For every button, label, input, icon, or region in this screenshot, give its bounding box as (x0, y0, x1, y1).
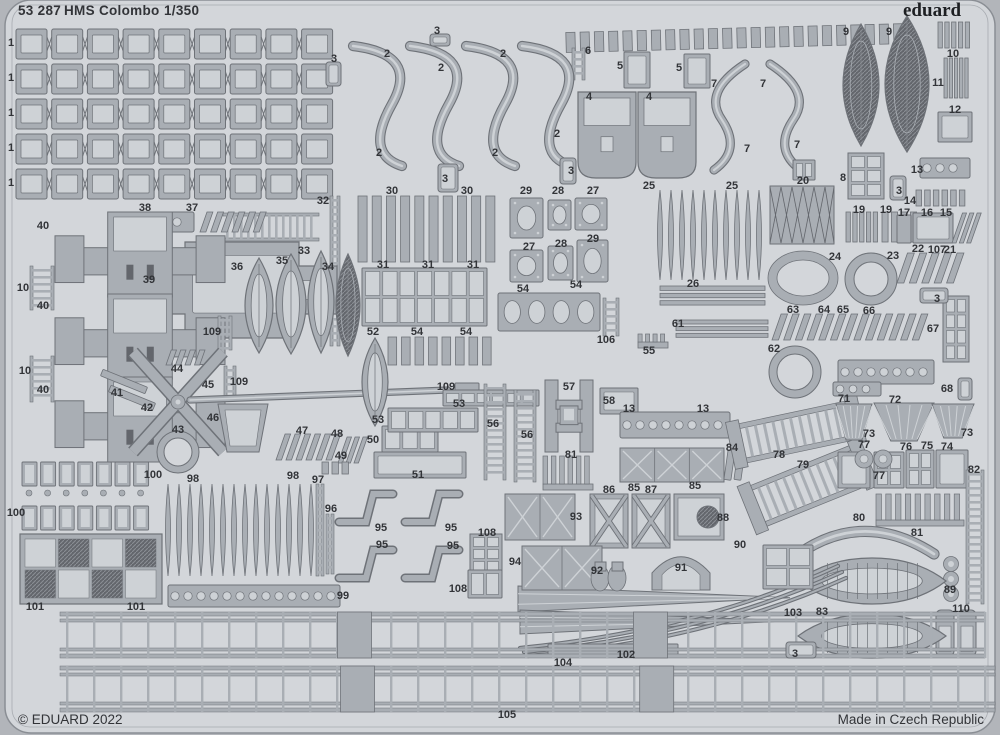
part-number-label: 2 (384, 48, 390, 60)
part-number-label: 3 (434, 25, 440, 37)
part-number-label: 61 (672, 318, 684, 330)
part-number-label: 40 (37, 220, 49, 232)
part-number-label: 95 (445, 522, 457, 534)
part-number-label: 12 (949, 104, 961, 116)
part-number-label: 109 (203, 326, 221, 338)
part-number-label: 104 (554, 657, 573, 669)
part-number-label: 3 (792, 648, 798, 660)
part-number-label: 87 (645, 484, 657, 496)
part-number-label: 77 (873, 470, 885, 482)
part-number-label: 98 (187, 473, 199, 485)
part-number-label: 62 (768, 343, 780, 355)
part-number-label: 40 (37, 384, 49, 396)
part-number-label: 90 (734, 539, 746, 551)
part-number-label: 108 (478, 527, 496, 539)
part-number-label: 27 (523, 241, 535, 253)
part-number-label: 64 (818, 304, 831, 316)
part-number-label: 42 (141, 402, 153, 414)
part-number-label: 109 (230, 376, 248, 388)
part-number-label: 32 (317, 195, 329, 207)
part-number-label: 88 (717, 512, 729, 524)
part-number-label: 52 (367, 326, 379, 338)
part-number-label: 28 (555, 238, 567, 250)
part-number-label: 66 (863, 305, 875, 317)
part-number-label: 67 (927, 323, 939, 335)
part-number-label: 38 (139, 202, 151, 214)
catalog-number: 53 287 (18, 3, 61, 18)
part-number-label: 53 (372, 414, 384, 426)
brand-logo: eduard (903, 0, 961, 22)
part-number-label: 13 (697, 403, 709, 415)
part-number-label: 25 (643, 180, 655, 192)
part-number-label: 27 (587, 185, 599, 197)
part-number-label: 65 (837, 304, 849, 316)
part-number-label: 1 (8, 142, 14, 154)
part-number-label: 82 (968, 464, 980, 476)
part-number-label: 19 (853, 204, 865, 216)
part-number-label: 13 (623, 403, 635, 415)
part-number-label: 9 (886, 26, 892, 38)
part-number-label: 79 (797, 459, 809, 471)
part-number-label: 73 (961, 427, 973, 439)
part-number-label: 2 (438, 62, 444, 74)
part-number-label: 91 (675, 562, 687, 574)
part-number-label: 51 (412, 469, 424, 481)
part-number-label: 77 (858, 439, 870, 451)
sheet-title: HMS Colombo (64, 3, 160, 18)
part-number-label: 55 (643, 345, 655, 357)
part-number-label: 10 (19, 365, 31, 377)
part-number-label: 86 (603, 484, 615, 496)
part-number-label: 44 (171, 363, 184, 375)
part-number-label: 99 (337, 590, 349, 602)
part-number-label: 75 (921, 440, 933, 452)
part-number-label: 22 (912, 243, 924, 255)
part-number-label: 97 (312, 474, 324, 486)
part-number-label: 23 (887, 250, 899, 262)
part-number-label: 94 (509, 556, 522, 568)
part-number-label: 56 (487, 418, 499, 430)
part-number-label: 40 (37, 300, 49, 312)
part-number-label: 85 (689, 480, 701, 492)
part-number-label: 3 (934, 293, 940, 305)
part-number-label: 92 (591, 565, 603, 577)
part-number-label: 83 (816, 606, 828, 618)
part-number-label: 28 (552, 185, 564, 197)
part-number-label: 31 (467, 259, 479, 271)
part-number-label: 2 (554, 128, 560, 140)
part-number-label: 31 (422, 259, 434, 271)
part-number-label: 34 (322, 261, 335, 273)
part-number-label: 1 (8, 177, 14, 189)
part-number-label: 110 (952, 603, 970, 615)
made-in-text: Made in Czech Republic (838, 712, 984, 727)
part-number-label: 11 (932, 77, 944, 89)
part-number-label: 6 (585, 45, 591, 57)
part-number-label: 43 (172, 424, 184, 436)
part-number-label: 101 (26, 601, 44, 613)
part-number-label: 9 (843, 26, 849, 38)
part-number-label: 4 (586, 91, 593, 103)
part-number-label: 54 (460, 326, 473, 338)
part-number-label: 3 (442, 173, 448, 185)
part-number-label: 2 (492, 147, 498, 159)
part-number-label: 54 (411, 326, 424, 338)
part-number-label: 24 (829, 251, 842, 263)
part-number-label: 46 (207, 412, 219, 424)
model-scale: 1/350 (164, 3, 199, 18)
part-number-label: 7 (760, 78, 766, 90)
part-number-label: 5 (676, 62, 682, 74)
part-number-label: 39 (143, 274, 155, 286)
part-number-label: 35 (276, 255, 288, 267)
part-number-label: 8 (840, 172, 846, 184)
part-number-label: 1 (8, 37, 14, 49)
part-number-label: 54 (517, 283, 530, 295)
part-number-label: 71 (838, 393, 850, 405)
part-number-label: 31 (377, 259, 389, 271)
part-number-label: 15 (940, 207, 952, 219)
part-number-label: 14 (904, 195, 917, 207)
part-number-label: 95 (375, 522, 387, 534)
part-number-label: 41 (111, 387, 123, 399)
part-number-label: 45 (202, 379, 214, 391)
part-number-label: 98 (287, 470, 299, 482)
part-number-label: 26 (687, 278, 699, 290)
part-number-label: 4 (646, 91, 653, 103)
part-number-label: 72 (889, 394, 901, 406)
part-number-label: 81 (911, 527, 923, 539)
part-number-label: 17 (898, 207, 910, 219)
part-number-label: 93 (570, 511, 582, 523)
fret-sheet-svg: 1111122222233333334455677778991010101112… (0, 0, 1000, 735)
part-number-label: 85 (628, 482, 640, 494)
part-number-label: 106 (597, 334, 615, 346)
part-number-label: 58 (603, 395, 615, 407)
part-number-label: 25 (726, 180, 738, 192)
photoetch-sheet-photo: 1111122222233333334455677778991010101112… (0, 0, 1000, 735)
part-number-label: 2 (500, 48, 506, 60)
part-number-label: 107 (928, 244, 946, 256)
part-number-label: 48 (331, 428, 343, 440)
part-number-label: 95 (376, 539, 388, 551)
part-number-label: 63 (787, 304, 799, 316)
part-number-label: 102 (617, 649, 635, 661)
part-number-label: 36 (231, 261, 243, 273)
part-number-label: 76 (900, 441, 912, 453)
part-number-label: 30 (461, 185, 473, 197)
part-number-label: 80 (853, 512, 865, 524)
part-number-label: 95 (447, 540, 459, 552)
part-number-label: 108 (449, 583, 467, 595)
part-number-label: 84 (726, 442, 739, 454)
part-number-label: 5 (617, 60, 623, 72)
part-number-label: 2 (376, 147, 382, 159)
part-number-label: 33 (298, 245, 310, 257)
part-number-label: 30 (386, 185, 398, 197)
part-number-label: 19 (880, 204, 892, 216)
copyright-text: © EDUARD 2022 (18, 712, 123, 727)
part-number-label: 68 (941, 383, 953, 395)
part-number-label: 10 (17, 282, 29, 294)
part-number-label: 78 (773, 449, 785, 461)
part-number-label: 37 (186, 202, 198, 214)
part-number-label: 96 (325, 503, 337, 515)
part-number-label: 105 (498, 709, 516, 721)
part-number-label: 54 (570, 279, 583, 291)
part-number-label: 100 (7, 507, 25, 519)
part-number-label: 20 (797, 175, 809, 187)
part-number-label: 7 (711, 78, 717, 90)
part-number-label: 10 (947, 48, 959, 60)
part-number-label: 50 (367, 434, 379, 446)
part-number-label: 16 (921, 207, 933, 219)
part-number-label: 7 (794, 139, 800, 151)
part-number-label: 29 (587, 233, 599, 245)
part-number-label: 101 (127, 601, 145, 613)
part-number-label: 100 (144, 469, 162, 481)
part-number-label: 7 (744, 143, 750, 155)
part-number-label: 49 (335, 450, 347, 462)
part-number-label: 3 (896, 185, 902, 197)
part-number-label: 47 (296, 425, 308, 437)
part-number-label: 29 (520, 185, 532, 197)
part-number-label: 1 (8, 72, 14, 84)
part-number-label: 103 (784, 607, 802, 619)
part-number-label: 81 (565, 449, 577, 461)
part-number-label: 56 (521, 429, 533, 441)
part-number-label: 109 (437, 381, 455, 393)
part-number-label: 1 (8, 107, 14, 119)
part-number-label: 89 (944, 584, 956, 596)
part-number-label: 53 (453, 398, 465, 410)
part-number-label: 57 (563, 381, 575, 393)
part-number-label: 74 (941, 441, 954, 453)
part-number-label: 3 (331, 53, 337, 65)
part-number-label: 13 (911, 164, 923, 176)
part-number-label: 3 (568, 165, 574, 177)
